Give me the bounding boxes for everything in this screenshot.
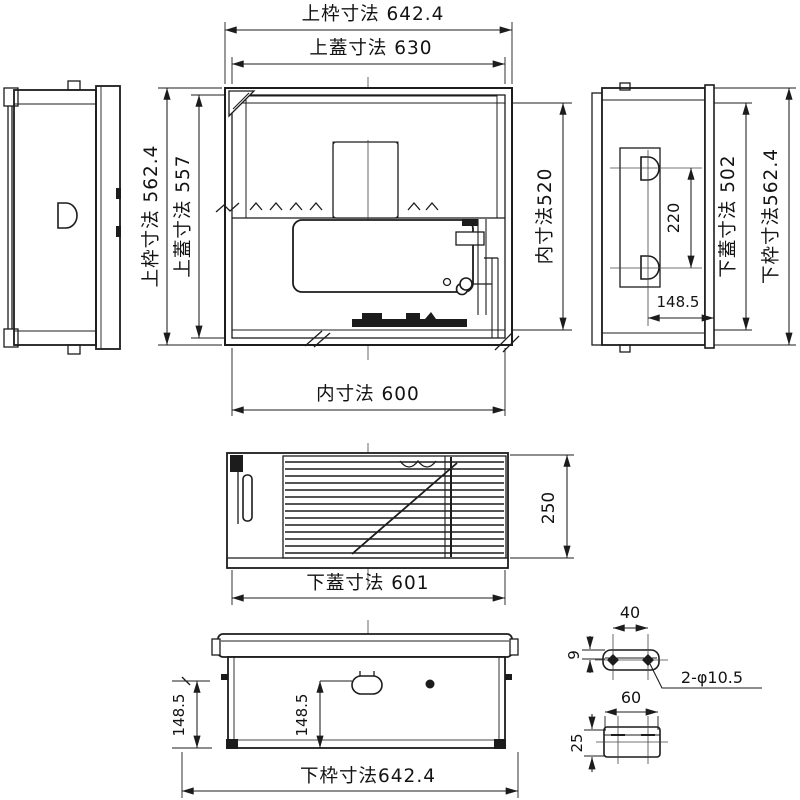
top-dimensions: 上枠寸法 642.4 上蓋寸法 630 [225,4,512,84]
dim-label-side-hole-pitch: 220 [664,203,683,234]
left-dimensions: 上枠寸法 562.4 上蓋寸法 557 [141,88,230,345]
front-view: 250 下蓋寸法 601 [227,443,574,605]
dim-label-detail-hole-pitch: 40 [620,603,640,622]
drawing-canvas: 上枠寸法 642.4 上蓋寸法 630 上枠寸法 562.4 上蓋寸法 557 [0,0,800,800]
lid [218,634,512,657]
detail-upper-bracket: 40 9 2-φ10.5 [565,603,762,688]
dim-label-detail-hole-note: 2-φ10.5 [681,668,743,687]
dim-label-front-lid-width: 下蓋寸法 601 [306,573,429,594]
plan-view: 内寸法520 内寸法 600 [216,77,572,416]
left-side-view [4,81,121,354]
knockout-hole [58,203,77,228]
center-knockout [352,676,382,694]
dimension-drawing: 上枠寸法 642.4 上蓋寸法 630 上枠寸法 562.4 上蓋寸法 557 [0,0,800,800]
dim-label-detail-height: 25 [568,733,586,752]
dim-label-bottom-frame-width: 下枠寸法642.4 [300,766,436,787]
burner-unit [293,220,473,292]
latch [230,455,243,472]
detail-lower-bracket: 60 25 [568,688,668,772]
dim-label-inner-height: 内寸法520 [535,168,556,265]
dim-label-top-lid-width: 上蓋寸法 630 [309,38,432,59]
dim-label-left-lid-height: 上蓋寸法 557 [173,154,194,277]
lid-edge [592,93,602,345]
dim-label-inner-width: 内寸法 600 [316,384,420,405]
bottom-view: 148.5 148.5 下枠寸法642.4 [170,620,518,798]
dim-label-side-lid-height: 下蓋寸法 502 [718,154,739,277]
right-side-view: 220 148.5 下蓋寸法 502 下枠寸法562.4 [592,83,796,352]
dim-label-side-hole-offset: 148.5 [657,293,700,311]
panel-opening [333,142,398,218]
dim-label-left-frame-height: 上枠寸法 562.4 [141,145,162,288]
dim-label-bottom-offset-center: 148.5 [293,694,311,737]
mounting-frame [705,85,714,348]
handle [243,475,252,521]
dim-label-front-height: 250 [539,492,559,524]
body [228,657,505,748]
dim-label-detail-flange-offset: 9 [565,650,583,660]
dim-label-detail-width: 60 [621,688,641,707]
hole [426,680,435,689]
dim-label-bottom-offset-outer: 148.5 [170,694,188,737]
dim-label-side-frame-height: 下枠寸法562.4 [761,148,782,284]
dim-label-top-frame-width: 上枠寸法 642.4 [302,4,445,25]
